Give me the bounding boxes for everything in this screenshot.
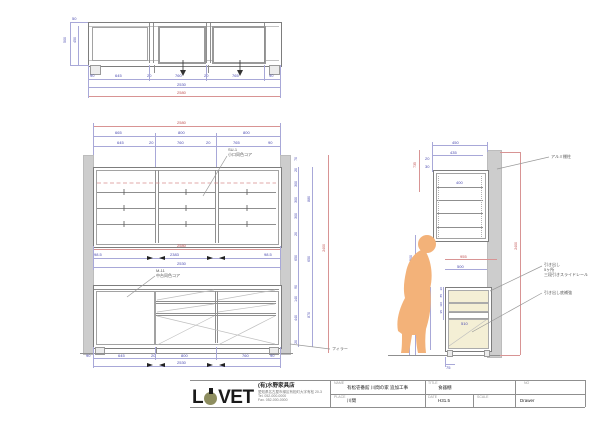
plan-left-door: [92, 27, 148, 61]
dim-label: 2400: [515, 242, 519, 250]
ext-line: [487, 142, 488, 152]
dim-label: 90: [269, 74, 273, 78]
dim-label: 765: [233, 141, 240, 145]
titleblock-line: [330, 380, 331, 407]
dim-label: 500: [457, 265, 464, 269]
logo-letters-vet: VET: [218, 390, 253, 405]
shelf-line: [159, 208, 215, 209]
dim-label: 400: [456, 181, 463, 185]
lower-note: 中台同色コア: [156, 273, 180, 278]
ext-line: [432, 142, 433, 172]
dim-label: 90: [86, 354, 90, 358]
logo-olive-icon: [204, 392, 217, 405]
dim-label: 75: [446, 366, 450, 370]
shelf-line: [437, 213, 483, 214]
leg: [447, 350, 453, 357]
partition-line: [217, 291, 218, 343]
dim-label: 300: [295, 181, 299, 187]
dim-line: [312, 167, 313, 347]
dim-label: 90: [268, 141, 272, 145]
dim-label: 765: [232, 74, 239, 78]
titleblock-line: [473, 394, 474, 407]
dim-line: [432, 145, 487, 146]
dim-line-red: [93, 126, 280, 127]
dim-label: 2530: [177, 262, 186, 266]
partition-line: [153, 23, 154, 63]
dim-label: 2580: [177, 244, 186, 248]
dim-line: [88, 87, 280, 88]
dim-line: [93, 267, 280, 268]
dim-label: 98.5: [94, 253, 102, 257]
dim-label: 98.5: [264, 253, 272, 257]
dim-label: 2580: [177, 121, 186, 125]
dim-label: 760: [175, 74, 182, 78]
partition-line: [210, 23, 211, 63]
dim-line-red: [445, 259, 497, 260]
dim-label: 20: [295, 168, 299, 172]
dim-label: 650: [308, 256, 312, 262]
drawer-line: [156, 315, 276, 316]
dim-line: [93, 358, 280, 359]
field-label-title: TITLE: [428, 382, 438, 386]
ext-line: [280, 347, 281, 368]
shelf-line: [219, 192, 276, 193]
partition-line: [215, 170, 216, 243]
dim-label: 650: [295, 255, 299, 261]
dim-label: 645: [118, 354, 125, 358]
dim-label: 90: [90, 74, 94, 78]
note-shelf: アルミ棚柱: [551, 154, 571, 159]
dim-line: [78, 26, 79, 65]
drawer-line: [156, 313, 276, 314]
shelf-line: [437, 227, 483, 228]
titleblock-line: [585, 380, 586, 407]
dim-label: 20: [295, 232, 299, 236]
drawer-line: [156, 303, 276, 304]
field-label-place: PLACE: [334, 396, 345, 400]
plan-mid-door: [158, 26, 206, 64]
dim-line: [88, 79, 280, 80]
dim-line: [93, 136, 280, 137]
dim-label: 800: [181, 354, 188, 358]
ext-line: [264, 65, 265, 81]
partition-line: [206, 23, 207, 63]
ext-line: [216, 347, 217, 360]
dim-label: 450: [74, 37, 78, 43]
ext-line: [149, 65, 150, 81]
field-label-no: NO: [524, 382, 529, 386]
logo-stem-icon: [209, 388, 213, 394]
dim-label: 645: [115, 74, 122, 78]
shelf-line: [219, 224, 276, 225]
shelf-pin-strip: [438, 176, 439, 237]
titleblock-line: [515, 380, 516, 407]
field-value-title: 食器棚: [438, 386, 452, 391]
partition-line: [264, 23, 265, 63]
shelf-line: [159, 224, 215, 225]
note-drawer-bottom: 引き出し底補強: [544, 290, 572, 295]
dim-line: [93, 366, 280, 367]
drawer-line: [156, 301, 276, 302]
ext-line: [93, 246, 94, 270]
dim-label: 90: [270, 354, 274, 358]
field-label-date: DATE: [428, 396, 437, 400]
ext-line: [206, 65, 207, 81]
field-value-date: H31.5: [438, 399, 450, 404]
dim-line: [409, 313, 410, 355]
shelf-line: [97, 192, 155, 193]
field-value-place: 川間: [347, 399, 356, 404]
drawer-big: [448, 319, 489, 349]
dim-line: [443, 287, 444, 320]
dim-label: 735: [414, 162, 418, 168]
logo-letter-l: L: [192, 390, 203, 405]
dim-label: 450: [452, 141, 459, 145]
titleblock-line: [330, 394, 585, 395]
partition-line: [155, 170, 156, 243]
ext-line: [93, 347, 94, 368]
plan-right-door: [212, 26, 266, 64]
dim-label: 560: [403, 312, 407, 318]
plan-support: [154, 65, 155, 73]
dim-line: [70, 65, 88, 66]
partition-line: [218, 170, 219, 243]
dim-label: 2400: [323, 244, 327, 252]
dim-line-red: [93, 249, 280, 250]
dim-label: 800: [243, 131, 250, 135]
dim-label: 880: [308, 196, 312, 202]
dim-line: [93, 258, 280, 259]
dim-label: 500: [64, 37, 68, 43]
ext-line: [280, 246, 281, 270]
leg: [484, 350, 490, 357]
partition-line: [158, 170, 159, 243]
dim-line-red: [520, 152, 521, 355]
ext-line: [155, 133, 156, 170]
partition-line: [215, 291, 216, 343]
dim-line-red: [88, 96, 280, 97]
ext-line: [500, 355, 520, 356]
dim-label: 90: [295, 285, 299, 289]
dim-label: 50: [72, 17, 76, 21]
shelf-line: [437, 187, 483, 188]
dim-label: 2530: [177, 83, 186, 87]
dim-line: [93, 146, 280, 147]
shelf-line: [97, 224, 155, 225]
dim-label: 2530: [177, 361, 186, 365]
note-drawer: 三段引きスライドレール: [544, 272, 588, 277]
company-fax: Fax. 052-000-0000: [258, 399, 288, 403]
lower-left-door: [96, 291, 155, 345]
drawer-2: [448, 303, 489, 312]
lovet-logo: L VET: [192, 385, 254, 405]
dim-label: 2383: [170, 253, 179, 257]
field-value-name: 有松壱番館 川間の家 追加工事: [347, 386, 408, 391]
ext-line: [88, 65, 89, 98]
dim-line: [70, 22, 71, 65]
dim-label: 20: [149, 141, 153, 145]
titleblock-line: [425, 380, 426, 407]
ext-line: [216, 133, 217, 170]
drawer-1: [448, 290, 489, 303]
dim-label: 20: [206, 141, 210, 145]
dim-label: 300: [295, 213, 299, 219]
drawing-sheet: 50 450 500 90 645 20 760 20 765 90 2530 …: [0, 0, 600, 423]
dim-label: 870: [308, 312, 312, 318]
field-value-no: Drawer: [520, 399, 535, 404]
dim-label: 70: [295, 157, 299, 161]
dim-label: 2580: [177, 91, 186, 95]
ext-line: [155, 347, 156, 360]
dim-label: 300: [295, 197, 299, 203]
dim-label: 1500: [410, 255, 414, 263]
counter-line: [94, 289, 279, 290]
dim-label: 440: [295, 315, 299, 321]
field-label-scale: SCALE: [477, 396, 488, 400]
dim-line: [415, 235, 416, 355]
dim-label: 510: [461, 322, 468, 326]
dim-line-red: [328, 155, 329, 353]
company-name: (有)水野家具店: [258, 384, 295, 390]
plan-support: [208, 65, 209, 73]
upper-note: 小口同色コア: [228, 152, 252, 157]
filler-note: フィラー: [332, 346, 348, 351]
shelf-line: [219, 208, 276, 209]
dim-line: [445, 269, 487, 270]
ext-line: [280, 65, 281, 98]
field-label-name: NAME: [334, 382, 344, 386]
dim-line: [432, 155, 483, 156]
dim-label: 20: [295, 340, 299, 344]
drawer-3: [448, 312, 489, 319]
shelf-line: [97, 208, 155, 209]
dim-label: 435: [450, 151, 457, 155]
dim-label: 30: [425, 165, 429, 169]
dim-label: 760: [242, 354, 249, 358]
dim-line-red: [419, 150, 420, 192]
dim-label: 760: [177, 141, 184, 145]
dim-label: 955: [460, 255, 467, 259]
dim-label: 645: [117, 141, 124, 145]
dim-label: 140: [295, 296, 299, 302]
dim-label: 800: [178, 131, 185, 135]
dim-label: 20: [425, 157, 429, 161]
shelf-line: [159, 192, 215, 193]
dim-line: [430, 287, 431, 350]
dim-label: 665: [115, 131, 122, 135]
shelf-pin-strip: [481, 176, 482, 237]
dim-label: 440: [425, 316, 429, 322]
ext-line: [500, 152, 520, 153]
shelf-line: [437, 200, 483, 201]
dim-line: [70, 22, 88, 23]
partition-line: [149, 23, 150, 63]
